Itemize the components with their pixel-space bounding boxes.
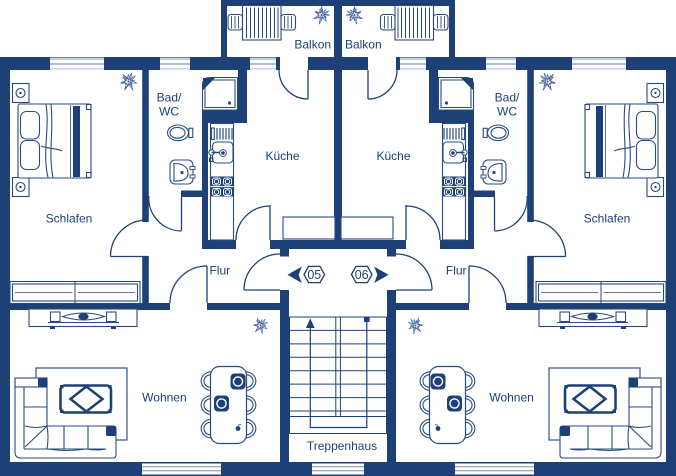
svg-text:Wohnen: Wohnen (489, 391, 533, 405)
svg-text:Küche: Küche (376, 149, 410, 163)
svg-text:WC: WC (497, 105, 517, 119)
svg-text:Bad/: Bad/ (157, 91, 182, 105)
svg-text:Wohnen: Wohnen (142, 391, 186, 405)
svg-text:Flur: Flur (446, 264, 467, 278)
svg-text:Balkon: Balkon (345, 37, 382, 51)
svg-text:Treppenhaus: Treppenhaus (307, 439, 377, 453)
svg-text:Schlafen: Schlafen (584, 212, 631, 226)
svg-text:Schlafen: Schlafen (46, 212, 93, 226)
svg-text:Bad/: Bad/ (495, 91, 520, 105)
svg-text:Küche: Küche (265, 149, 299, 163)
svg-text:Balkon: Balkon (294, 37, 331, 51)
svg-text:05: 05 (307, 268, 321, 282)
svg-text:WC: WC (159, 105, 179, 119)
svg-text:06: 06 (355, 268, 369, 282)
svg-text:Flur: Flur (209, 264, 230, 278)
